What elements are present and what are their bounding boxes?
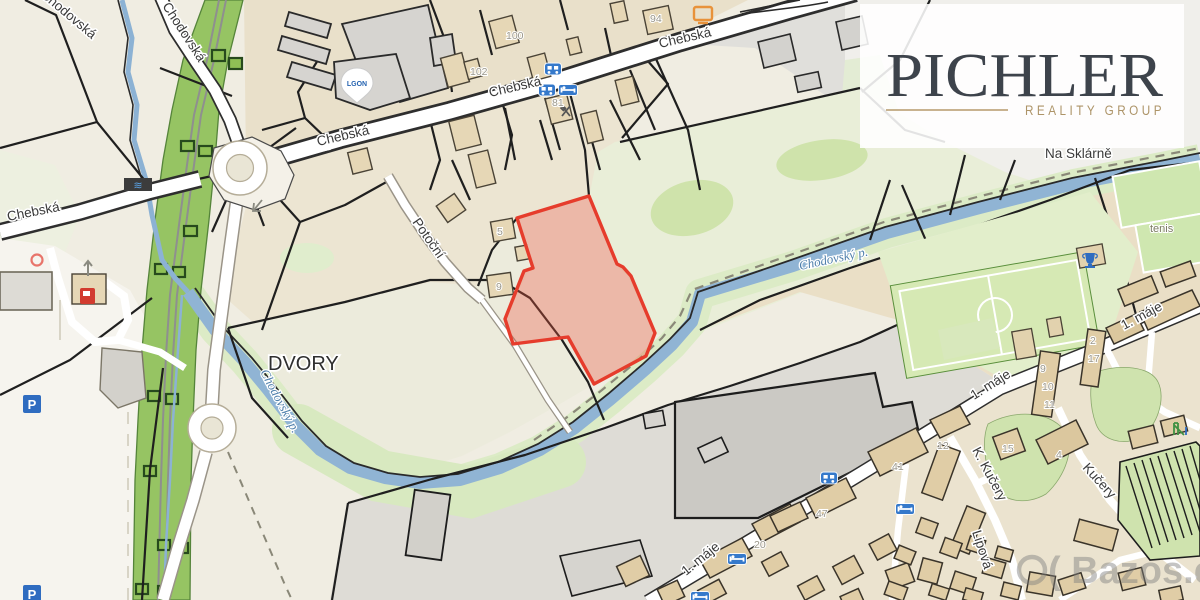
svg-text:≋: ≋ — [133, 180, 142, 192]
svg-text:P: P — [28, 587, 37, 600]
svg-text:P: P — [28, 397, 37, 412]
svg-text:DVORY: DVORY — [268, 353, 339, 375]
svg-text:41: 41 — [892, 461, 904, 473]
svg-text:4: 4 — [1056, 449, 1062, 461]
svg-text:102: 102 — [470, 66, 488, 78]
svg-text:17: 17 — [1088, 353, 1100, 365]
svg-text:47: 47 — [816, 508, 828, 520]
svg-text:PICHLER: PICHLER — [886, 42, 1164, 110]
svg-text:81: 81 — [552, 97, 564, 109]
svg-text:94: 94 — [650, 13, 662, 25]
svg-text:15: 15 — [1002, 443, 1014, 455]
svg-text:9: 9 — [1040, 363, 1046, 375]
svg-text:12: 12 — [937, 440, 949, 452]
svg-text:( Bazos.cz: ( Bazos.cz — [1048, 550, 1200, 592]
svg-text:tenis: tenis — [1150, 223, 1174, 235]
svg-text:5: 5 — [497, 226, 503, 238]
svg-text:Na Sklárně: Na Sklárně — [1045, 146, 1112, 161]
svg-text:11: 11 — [1044, 399, 1055, 411]
svg-text:LGON: LGON — [347, 81, 367, 88]
svg-text:10: 10 — [1042, 381, 1054, 393]
svg-text:2: 2 — [1090, 335, 1096, 347]
svg-text:REALITY GROUP: REALITY GROUP — [1025, 103, 1165, 118]
svg-text:9: 9 — [496, 281, 502, 293]
svg-text:100: 100 — [506, 30, 524, 42]
svg-text:20: 20 — [754, 539, 766, 551]
